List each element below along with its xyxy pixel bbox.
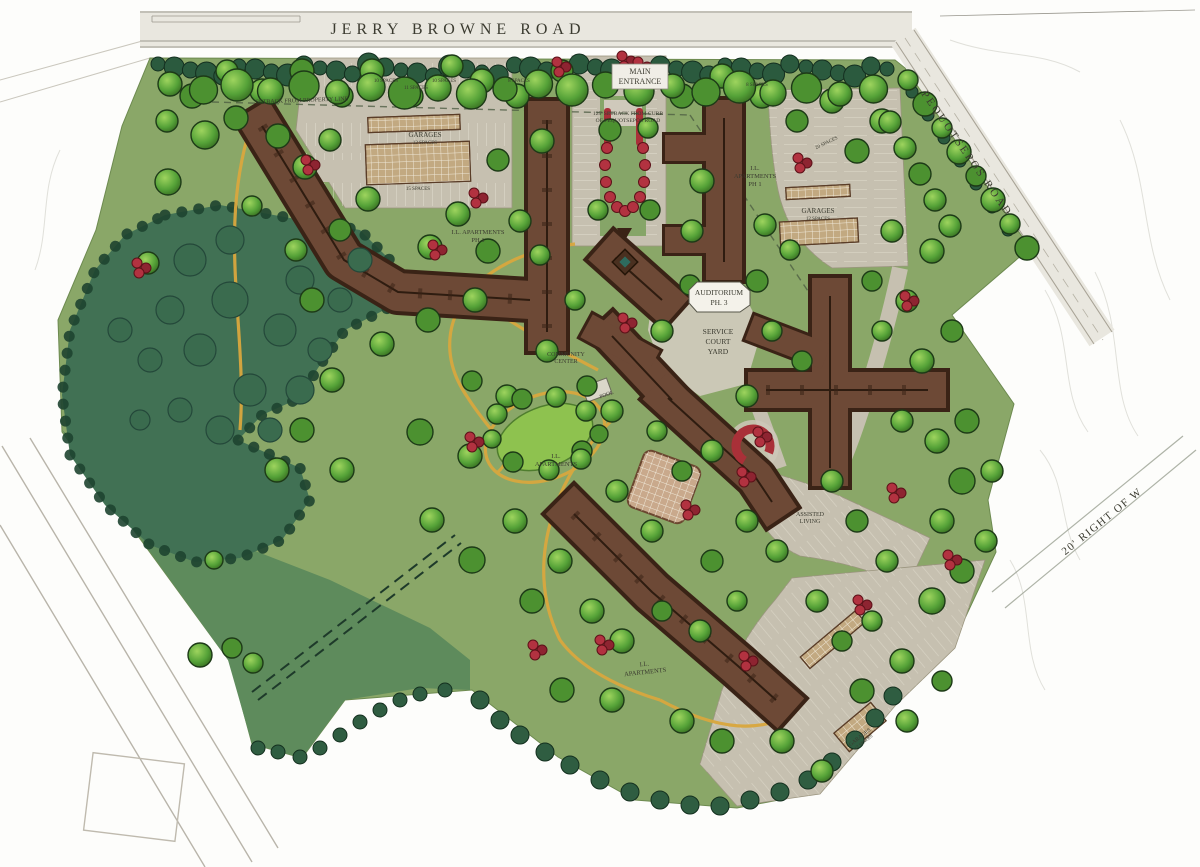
setback-pequotsepos-label-2: OF PEQUOTSEPOS ROAD <box>596 118 661 124</box>
tree-icon <box>457 79 487 109</box>
forest-clump-icon <box>264 314 296 346</box>
tree-icon <box>487 404 507 424</box>
hedge-icon <box>561 756 579 774</box>
tree-icon <box>512 389 532 409</box>
tree-icon <box>770 729 794 753</box>
community-center-label-2: CENTER <box>554 359 577 365</box>
forest-clump-icon <box>156 296 184 324</box>
forest-clump-icon <box>174 244 206 276</box>
tree-icon <box>600 688 624 712</box>
auditorium-plate <box>689 282 750 312</box>
parking-count-4: 8 SPACES <box>508 79 530 84</box>
red-shrub-icon <box>552 57 562 67</box>
tree-icon <box>330 458 354 482</box>
tree-icon <box>891 410 913 432</box>
red-shrub-icon <box>639 177 650 188</box>
tree-icon <box>420 508 444 532</box>
tree-icon <box>483 430 501 448</box>
red-shrub-icon <box>755 437 765 447</box>
tree-icon <box>762 321 782 341</box>
red-shrub-icon <box>683 510 693 520</box>
tree-icon <box>463 288 487 312</box>
tree-icon <box>266 124 290 148</box>
forest-clump-icon <box>328 288 352 312</box>
apartments-mid-label-2: APARTMENTS <box>535 461 578 468</box>
red-shrub-icon <box>753 427 763 437</box>
tree-icon <box>530 129 554 153</box>
assisted-living-label-1: ASSISTED <box>796 512 825 518</box>
apartments-bottom-label-1: I.L. <box>639 661 649 669</box>
tree-icon <box>530 245 550 265</box>
red-shrub-icon <box>737 467 747 477</box>
forest-clump-icon <box>168 398 192 422</box>
red-shrub-icon <box>132 258 142 268</box>
tree-icon <box>909 163 931 185</box>
evergreen-icon <box>313 61 327 75</box>
garages-left-label-1: GARAGES <box>408 131 441 139</box>
red-shrub-icon <box>554 67 564 77</box>
tree-icon <box>941 320 963 342</box>
tree-icon <box>407 419 433 445</box>
tree-icon <box>670 709 694 733</box>
assisted-living-label-2: LIVING <box>800 519 821 525</box>
tree-icon <box>746 270 768 292</box>
red-shrub-icon <box>303 165 313 175</box>
red-shrub-icon <box>469 188 479 198</box>
hedge-icon <box>373 703 387 717</box>
tree-icon <box>672 461 692 481</box>
apartments-right-label-1: I.L. <box>750 165 760 172</box>
red-shrub-icon <box>887 483 897 493</box>
tree-icon <box>647 421 667 441</box>
tree-icon <box>860 75 888 103</box>
hedge-icon <box>536 743 554 761</box>
tree-icon <box>576 401 596 421</box>
evergreen-icon <box>799 60 813 74</box>
tree-icon <box>462 371 482 391</box>
tree-icon <box>577 376 597 396</box>
tree-icon <box>525 70 553 98</box>
parking-count-5: 15 SPACES <box>406 187 430 192</box>
tree-icon <box>190 76 218 104</box>
parking-count-7: 8 SPACES <box>746 83 768 88</box>
tree-icon <box>652 601 672 621</box>
tree-icon <box>370 332 394 356</box>
tree-icon <box>846 510 868 532</box>
tree-icon <box>487 149 509 171</box>
tree-icon <box>832 631 852 651</box>
red-shrub-icon <box>902 301 912 311</box>
red-shrub-icon <box>471 198 481 208</box>
apartments-right-label-3: PH 1 <box>748 181 761 188</box>
tree-icon <box>550 678 574 702</box>
apartments-left-label-1: I.L. APARTMENTS <box>451 229 504 236</box>
evergreen-icon <box>151 57 165 71</box>
tree-icon <box>766 540 788 562</box>
red-shrub-icon <box>467 442 477 452</box>
tree-icon <box>290 418 314 442</box>
tree-icon <box>565 290 585 310</box>
tree-icon <box>710 729 734 753</box>
tree-icon <box>243 653 263 673</box>
parking-count-1: 10 SPACES <box>374 79 398 84</box>
tree-icon <box>806 590 828 612</box>
hedge-icon <box>251 741 265 755</box>
tree-icon <box>701 440 723 462</box>
evergreen-icon <box>862 57 880 75</box>
tree-icon <box>356 187 380 211</box>
red-shrub-icon <box>889 493 899 503</box>
tree-icon <box>546 387 566 407</box>
red-shrub-icon <box>430 250 440 260</box>
tree-icon <box>896 710 918 732</box>
tree-icon <box>357 73 385 101</box>
tree-icon <box>205 551 223 569</box>
tree-icon <box>780 240 800 260</box>
tree-icon <box>811 760 833 782</box>
tree-icon <box>692 78 720 106</box>
forest-clump-icon <box>130 410 150 430</box>
forest-clump-icon <box>258 418 282 442</box>
hedge-icon <box>621 783 639 801</box>
tree-icon <box>845 139 869 163</box>
red-shrub-icon <box>617 51 627 61</box>
jerry-browne-road-label: JERRY BROWNE ROAD <box>330 21 585 38</box>
tree-icon <box>879 111 901 133</box>
community-center-label-1: COMMUNITY <box>547 352 585 358</box>
tree-icon <box>736 385 758 407</box>
tree-icon <box>222 638 242 658</box>
forest-clump-icon <box>348 248 372 272</box>
red-shrub-icon <box>793 153 803 163</box>
tree-icon <box>955 409 979 433</box>
forest-clump-icon <box>184 334 216 366</box>
tree-icon <box>224 106 248 130</box>
setback-pequotsepos-label-1: 125' SETBACK FROM CURB <box>593 111 663 117</box>
red-shrub-icon <box>595 635 605 645</box>
service-court-label-2: COURT <box>706 337 731 346</box>
red-shrub-icon <box>620 323 630 333</box>
tree-icon <box>503 509 527 533</box>
hedge-icon <box>413 687 427 701</box>
tree-icon <box>588 200 608 220</box>
tree-icon <box>890 649 914 673</box>
hedge-icon <box>313 741 327 755</box>
tree-icon <box>876 550 898 572</box>
forest-clump-icon <box>286 376 314 404</box>
red-shrub-icon <box>855 605 865 615</box>
tree-icon <box>690 169 714 193</box>
main-entrance-label-1: MAIN <box>629 67 651 76</box>
hedge-icon <box>293 750 307 764</box>
tree-icon <box>828 82 852 106</box>
forest-clump-icon <box>108 318 132 342</box>
tree-icon <box>156 110 178 132</box>
auditorium-label-2: PH. 3 <box>710 298 727 307</box>
hedge-icon <box>393 693 407 707</box>
red-shrub-icon <box>900 291 910 301</box>
tree-icon <box>786 110 808 132</box>
hedge-icon <box>651 791 669 809</box>
red-shrub-icon <box>605 192 616 203</box>
tree-icon <box>188 643 212 667</box>
tree-icon <box>894 137 916 159</box>
main-entrance-label-2: ENTRANCE <box>619 77 662 86</box>
parking-count-3: 10 SPACES <box>432 79 456 84</box>
garages-left-label-2: 12 SPACES <box>413 141 437 146</box>
tree-icon <box>925 429 949 453</box>
tree-icon <box>930 509 954 533</box>
tree-icon <box>503 452 523 472</box>
hedge-icon <box>511 726 529 744</box>
apartments-right-label-2: APARTMENTS <box>734 173 777 180</box>
red-shrub-icon <box>301 155 311 165</box>
tree-icon <box>641 520 663 542</box>
tree-icon <box>681 220 703 242</box>
red-shrub-icon <box>739 651 749 661</box>
red-shrub-icon <box>600 160 611 171</box>
red-shrub-icon <box>530 650 540 660</box>
forest-clump-icon <box>216 226 244 254</box>
tree-icon <box>850 679 874 703</box>
tree-icon <box>580 599 604 623</box>
hedge-icon <box>438 683 452 697</box>
service-court-label-3: YARD <box>708 347 729 356</box>
tree-icon <box>601 400 623 422</box>
tree-icon <box>932 671 952 691</box>
red-shrub-icon <box>635 192 646 203</box>
tree-icon <box>821 470 843 492</box>
red-shrub-icon <box>681 500 691 510</box>
hedge-icon <box>681 796 699 814</box>
site-plan-page: JERRY BROWNE ROAD PEQUOTSEPOS ROAD 20' R… <box>0 0 1200 867</box>
tree-icon <box>610 629 634 653</box>
hedge-icon <box>771 783 789 801</box>
tree-icon <box>701 550 723 572</box>
red-shrub-icon <box>739 477 749 487</box>
auditorium-label-1: AUDITORIUM <box>695 288 744 297</box>
red-shrub-icon <box>943 550 953 560</box>
garages-right-label-1: GARAGES <box>801 207 834 215</box>
hedge-icon <box>471 691 489 709</box>
tree-icon <box>548 549 572 573</box>
hedge-icon <box>741 791 759 809</box>
tree-icon <box>862 271 882 291</box>
evergreen-icon <box>781 55 799 73</box>
tree-icon <box>289 71 319 101</box>
tree-icon <box>910 349 934 373</box>
hedge-icon <box>333 728 347 742</box>
parking-count-2: 11 SPACES <box>404 86 428 91</box>
hedge-icon <box>491 711 509 729</box>
tree-icon <box>191 121 219 149</box>
hedge-icon <box>353 715 367 729</box>
tree-icon <box>221 69 253 101</box>
tree-icon <box>881 220 903 242</box>
red-shrub-icon <box>945 560 955 570</box>
tree-icon <box>155 169 181 195</box>
tree-icon <box>919 588 945 614</box>
tree-icon <box>939 215 961 237</box>
red-shrub-icon <box>134 268 144 278</box>
tree-icon <box>727 591 747 611</box>
tree-icon <box>949 468 975 494</box>
tree-icon <box>1000 214 1020 234</box>
forest-clump-icon <box>138 348 162 372</box>
forest-clump-icon <box>206 416 234 444</box>
tree-icon <box>898 70 918 90</box>
red-shrub-icon <box>853 595 863 605</box>
hedge-icon <box>711 797 729 815</box>
tree-icon <box>416 308 440 332</box>
tree-icon <box>158 72 182 96</box>
apartments-mid-label-1: I.L. <box>551 453 561 460</box>
tree-icon <box>640 200 660 220</box>
red-shrub-icon <box>795 163 805 173</box>
red-shrub-icon <box>528 640 538 650</box>
red-shrub-icon <box>640 160 651 171</box>
tree-icon <box>872 321 892 341</box>
tree-icon <box>285 239 307 261</box>
tree-icon <box>975 530 997 552</box>
tree-icon <box>736 510 758 532</box>
evergreen-icon <box>326 61 346 81</box>
red-shrub-icon <box>741 661 751 671</box>
tree-icon <box>792 351 812 371</box>
tree-icon <box>320 368 344 392</box>
apartments-left-label-2: PH 1 <box>471 237 484 244</box>
forest-clump-icon <box>234 374 266 406</box>
red-shrub-icon <box>628 202 639 213</box>
forest-clump-icon <box>308 338 332 362</box>
site-plan-drawing: JERRY BROWNE ROAD PEQUOTSEPOS ROAD 20' R… <box>0 0 1200 867</box>
garages-right-label-2: 12 SPACES <box>806 217 830 222</box>
red-shrub-icon <box>597 645 607 655</box>
tree-icon <box>862 611 882 631</box>
red-shrub-icon <box>428 240 438 250</box>
hedge-icon <box>591 771 609 789</box>
tree-icon <box>556 74 588 106</box>
hedge-icon <box>271 745 285 759</box>
hedge-icon <box>866 709 884 727</box>
tree-icon <box>242 196 262 216</box>
hedge-icon <box>884 687 902 705</box>
tree-icon <box>606 480 628 502</box>
tree-icon <box>920 239 944 263</box>
evergreen-icon <box>394 63 408 77</box>
tree-icon <box>441 55 463 77</box>
tree-icon <box>792 73 822 103</box>
tree-icon <box>459 547 485 573</box>
tree-icon <box>1015 236 1039 260</box>
tree-icon <box>651 320 673 342</box>
tree-icon <box>319 129 341 151</box>
red-shrub-icon <box>638 143 649 154</box>
tree-icon <box>590 425 608 443</box>
forest-clump-icon <box>212 282 248 318</box>
tree-icon <box>300 288 324 312</box>
tree-icon <box>329 219 351 241</box>
red-shrub-icon <box>618 313 628 323</box>
service-court-label-1: SERVICE <box>703 327 734 336</box>
tree-icon <box>689 620 711 642</box>
tree-icon <box>981 460 1003 482</box>
red-shrub-icon <box>602 143 613 154</box>
tree-icon <box>754 214 776 236</box>
red-shrub-icon <box>465 432 475 442</box>
tree-icon <box>265 458 289 482</box>
tree-icon <box>924 189 946 211</box>
evergreen-icon <box>880 62 894 76</box>
tree-icon <box>446 202 470 226</box>
tree-icon <box>509 210 531 232</box>
red-shrub-icon <box>601 177 612 188</box>
tree-icon <box>520 589 544 613</box>
